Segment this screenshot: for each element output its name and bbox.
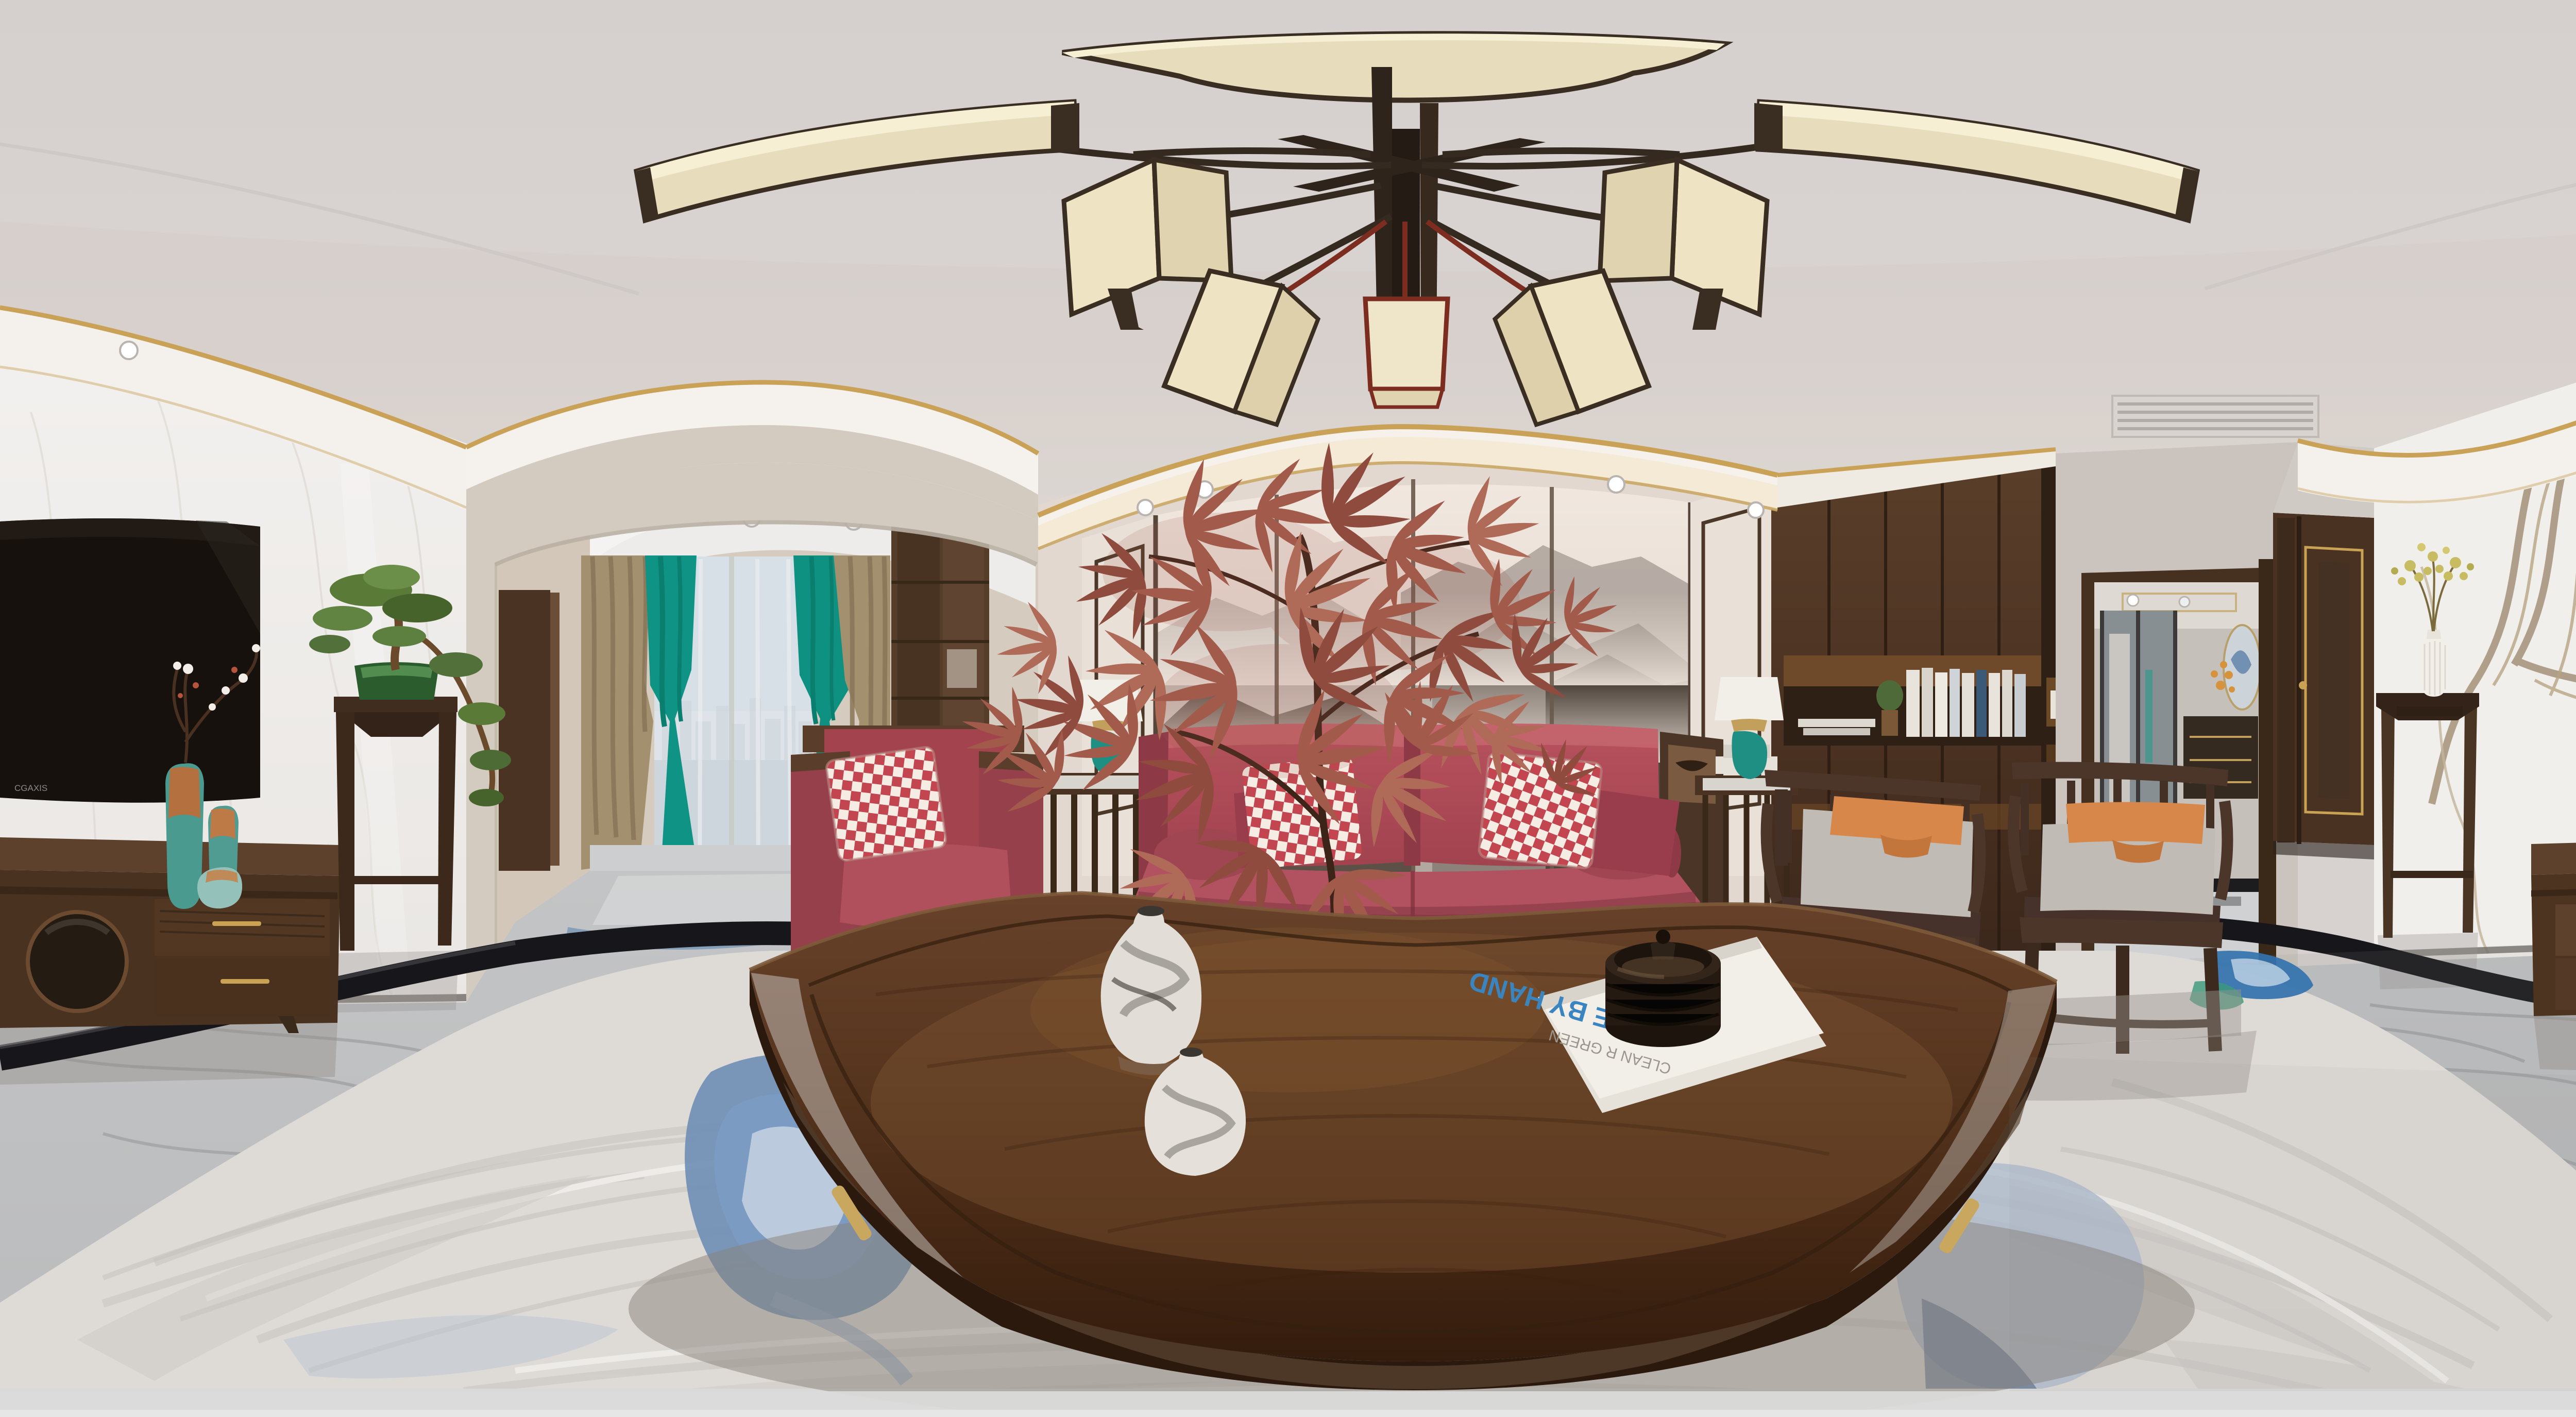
svg-text:CGAXIS: CGAXIS <box>14 783 47 793</box>
